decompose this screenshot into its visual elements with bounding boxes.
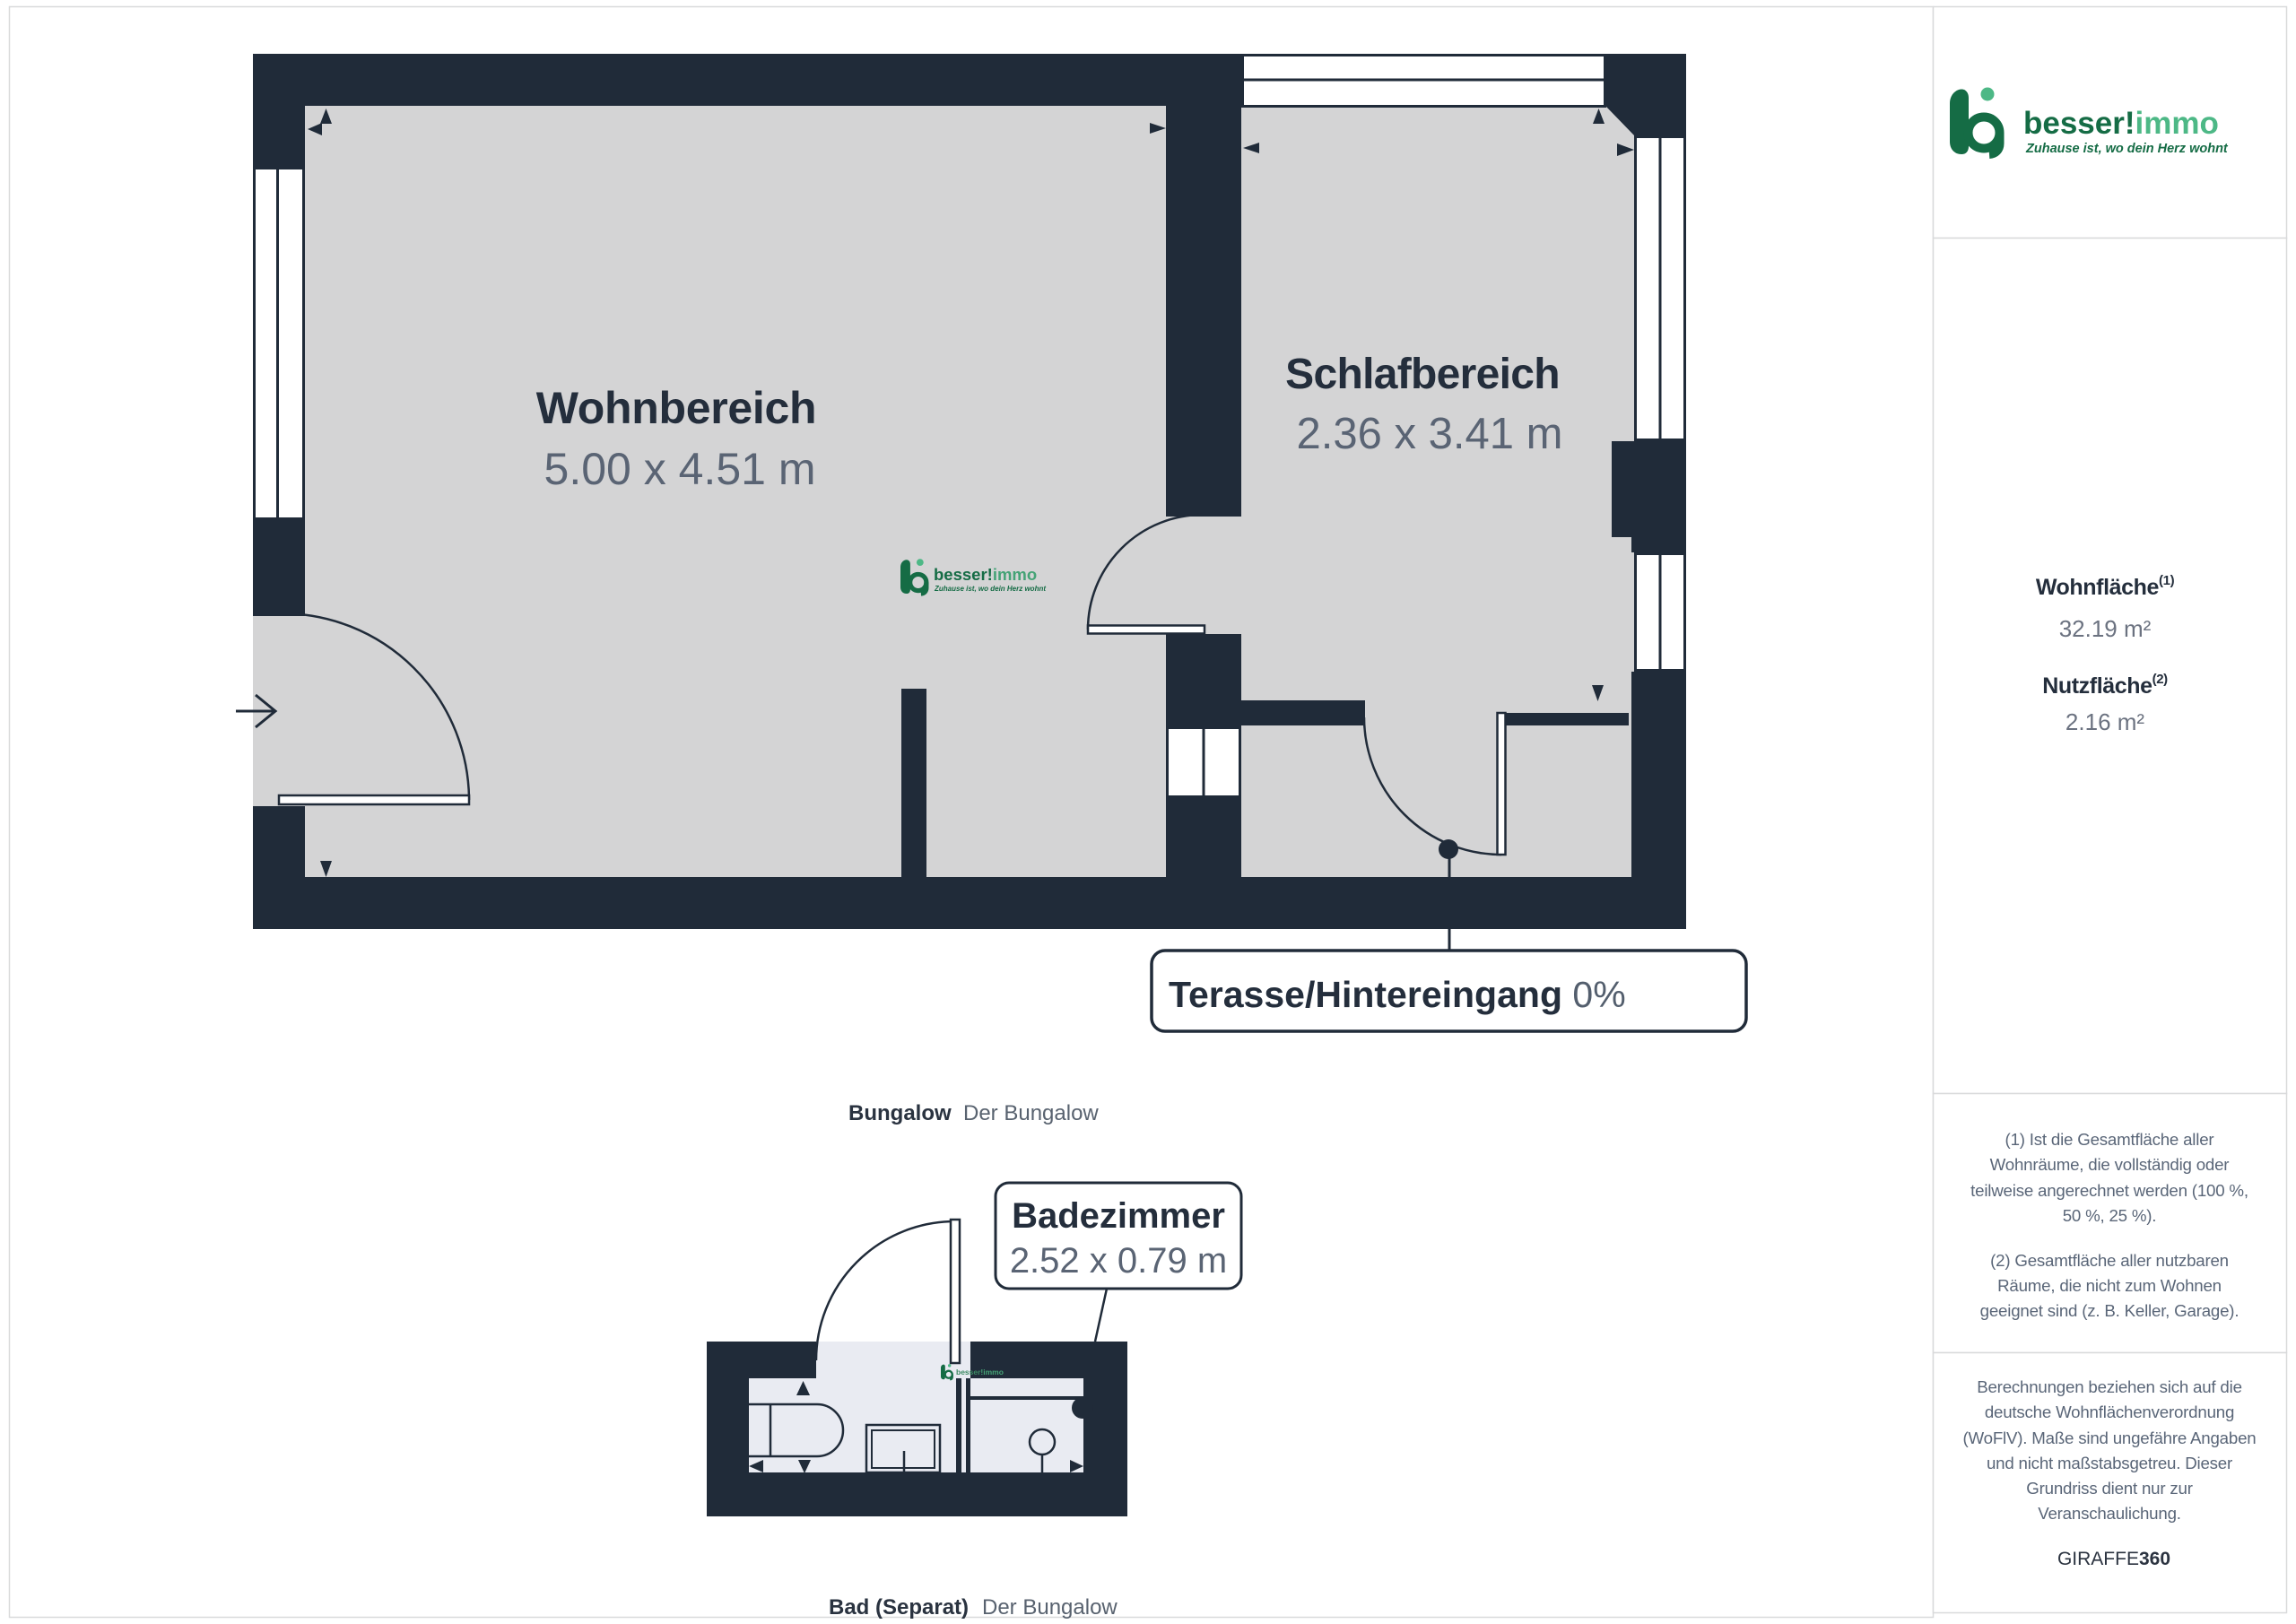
svg-text:GIRAFFE360: GIRAFFE360: [2057, 1549, 2170, 1569]
svg-text:(WoFlV). Maße sind ungefähre A: (WoFlV). Maße sind ungefähre Angaben: [1963, 1429, 2257, 1447]
svg-text:Terasse/Hintereingang 0%: Terasse/Hintereingang 0%: [1169, 974, 1626, 1015]
svg-text:Wohnbereich: Wohnbereich: [536, 383, 816, 433]
svg-text:Der Bungalow: Der Bungalow: [982, 1595, 1118, 1620]
svg-text:Wohnfläche(1): Wohnfläche(1): [2036, 573, 2175, 600]
svg-text:Zuhause ist, wo dein Herz wohn: Zuhause ist, wo dein Herz wohnt: [2025, 142, 2229, 156]
svg-text:Räume, die nicht zum Wohnen: Räume, die nicht zum Wohnen: [1997, 1276, 2222, 1295]
svg-text:2.16 m²: 2.16 m²: [2066, 708, 2144, 735]
svg-text:besser!immo: besser!immo: [2023, 106, 2219, 141]
svg-text:Schlafbereich: Schlafbereich: [1285, 351, 1560, 398]
svg-text:Der Bungalow: Der Bungalow: [963, 1101, 1099, 1125]
svg-text:(2) Gesamtfläche aller nutzbar: (2) Gesamtfläche aller nutzbaren: [1990, 1251, 2229, 1270]
svg-text:besser!immo: besser!immo: [956, 1368, 1004, 1376]
svg-text:teilweise angerechnet werden (: teilweise angerechnet werden (100 %,: [1970, 1181, 2248, 1200]
svg-text:Zuhause ist, wo dein Herz wohn: Zuhause ist, wo dein Herz wohnt: [934, 585, 1046, 593]
svg-text:Veranschaulichung.: Veranschaulichung.: [2038, 1504, 2181, 1523]
svg-text:deutsche Wohnflächenverordnung: deutsche Wohnflächenverordnung: [1985, 1403, 2234, 1421]
svg-text:besser!immo: besser!immo: [934, 565, 1037, 584]
svg-text:Berechnungen beziehen sich auf: Berechnungen beziehen sich auf die: [1977, 1377, 2242, 1396]
svg-text:Wohnräume, die vollständig ode: Wohnräume, die vollständig oder: [1990, 1155, 2230, 1174]
svg-text:(1) Ist die Gesamtfläche aller: (1) Ist die Gesamtfläche aller: [2005, 1130, 2214, 1149]
svg-text:Grundriss dient nur zur: Grundriss dient nur zur: [2026, 1479, 2192, 1498]
svg-text:geeignet sind (z. B. Keller, G: geeignet sind (z. B. Keller, Garage).: [1980, 1301, 2239, 1320]
svg-text:Nutzfläche(2): Nutzfläche(2): [2042, 672, 2168, 699]
svg-text:32.19 m²: 32.19 m²: [2059, 615, 2152, 642]
svg-text:Badezimmer: Badezimmer: [1012, 1196, 1225, 1236]
svg-text:5.00 x 4.51 m: 5.00 x 4.51 m: [544, 444, 816, 494]
svg-text:Bungalow: Bungalow: [848, 1101, 952, 1125]
svg-text:2.36 x 3.41 m: 2.36 x 3.41 m: [1297, 410, 1563, 458]
svg-text:50 %, 25 %).: 50 %, 25 %).: [2063, 1206, 2157, 1225]
svg-text:Bad (Separat): Bad (Separat): [829, 1595, 969, 1620]
svg-text:2.52 x 0.79 m: 2.52 x 0.79 m: [1010, 1241, 1227, 1281]
svg-text:und nicht maßstabsgetreu. Dies: und nicht maßstabsgetreu. Dieser: [1987, 1454, 2232, 1472]
